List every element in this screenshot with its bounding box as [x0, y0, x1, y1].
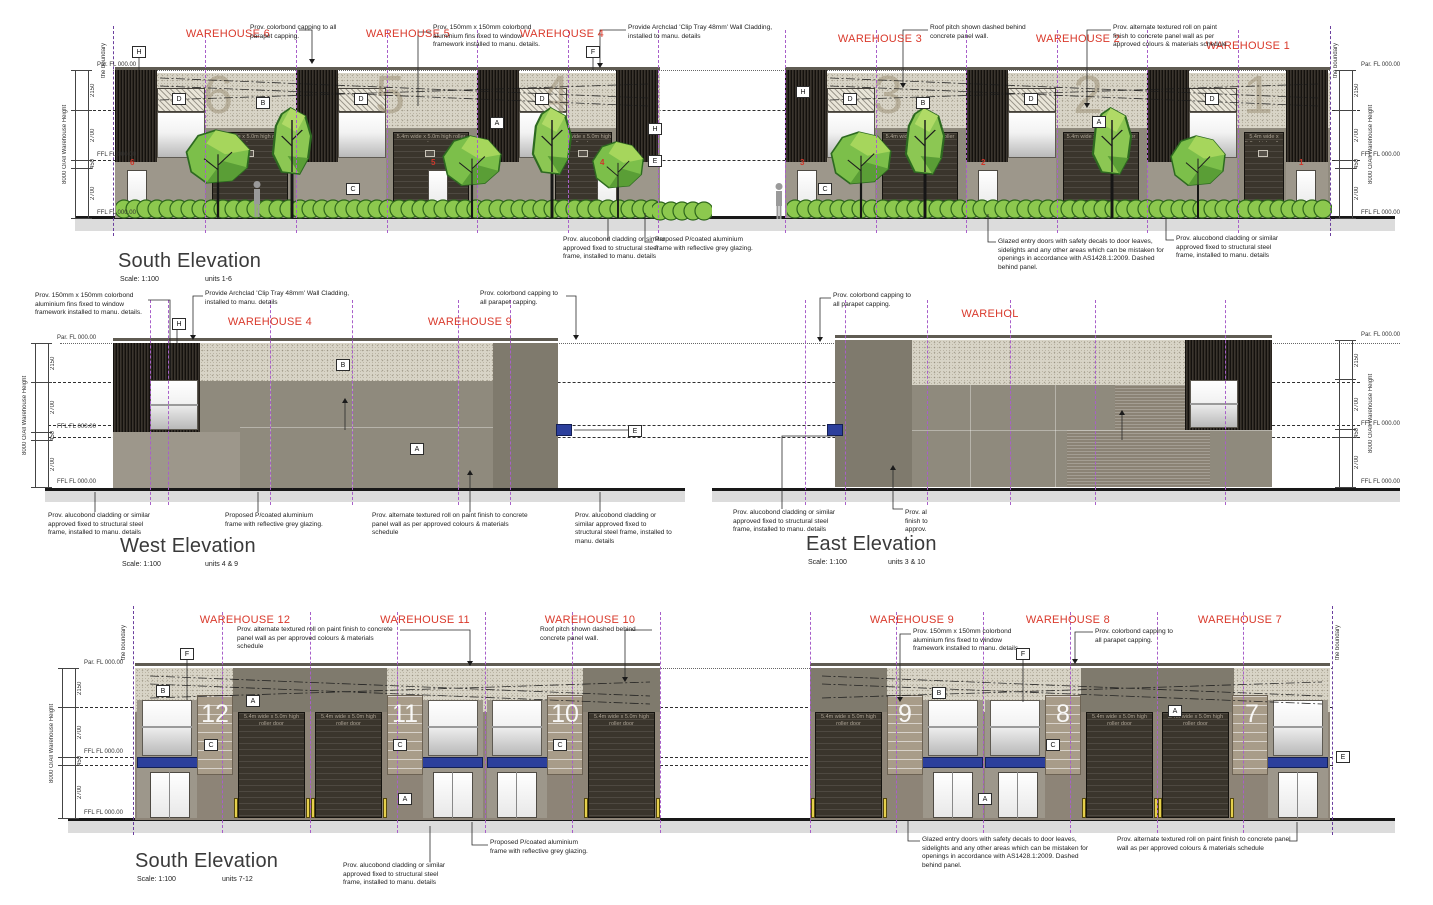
slat-cladding — [115, 70, 157, 162]
person-icon — [772, 182, 786, 220]
tree-icon — [828, 130, 894, 220]
slat-cladding — [1286, 70, 1328, 162]
tree-icon — [590, 140, 646, 220]
grid-line — [485, 612, 486, 833]
spec-note: Provide Archclad 'Clip Tray 48mm' Wall C… — [205, 290, 357, 307]
wall-panel — [1081, 668, 1158, 712]
dimension-tick — [1335, 110, 1356, 111]
canopy — [827, 424, 843, 436]
dimension-text: 8000 O/All Warehouse Height — [49, 674, 59, 812]
unit-number: 6 — [130, 158, 134, 167]
entry-door — [497, 772, 537, 818]
dimension-tick — [31, 432, 52, 433]
spec-note: Prov. alternate textured roll on paint f… — [237, 626, 401, 652]
grid-line — [222, 612, 223, 833]
grid-line — [1225, 300, 1226, 505]
reference-tag: A — [978, 793, 992, 805]
unit-number: 1 — [1299, 158, 1303, 167]
dimension-tick — [1335, 487, 1356, 488]
spec-note: Glazed entry doors with safety decals to… — [922, 836, 1096, 871]
spec-note: Prov. alucobond cladding or similar appr… — [48, 512, 155, 538]
dimension-tick — [31, 343, 52, 344]
grid-line — [458, 300, 459, 505]
grid-line — [510, 300, 511, 505]
unit-number: 5 — [431, 158, 435, 167]
grid-line — [1070, 612, 1071, 833]
warehouse-label: WAREHOUSE 7 — [1198, 614, 1282, 626]
window-sash — [492, 726, 542, 728]
door-mullion — [952, 772, 953, 818]
roller-door-sign — [1258, 150, 1268, 157]
dimension-tick — [58, 757, 79, 758]
reference-tag: A — [490, 117, 504, 129]
reference-tag: H — [796, 86, 810, 98]
south-elevation-7-12-units: units 7-12 — [222, 876, 253, 883]
dimension-text: 2150 — [1354, 78, 1363, 102]
dimension-text: 2150 — [77, 676, 86, 700]
door-mullion — [169, 772, 170, 818]
ground-band — [45, 491, 685, 502]
warehouse-label: WAREHOUSE 4 — [228, 316, 312, 328]
tree-icon — [183, 128, 253, 220]
roller-door-label: 5.4m wide x 5.0m high roller door — [1244, 134, 1284, 142]
dimension-text: 2700 — [90, 181, 99, 205]
unit-number: 3 — [800, 158, 804, 167]
window — [142, 700, 192, 756]
grid-line — [387, 30, 388, 233]
dimension-line — [1339, 340, 1340, 487]
grid-line — [896, 612, 897, 833]
reference-tag: A — [1168, 705, 1182, 717]
facade-numeral: 9 — [898, 702, 912, 727]
entry-door — [933, 772, 973, 818]
reference-tag: E — [648, 155, 662, 167]
level-label: Par. FL 000.00 — [1361, 332, 1400, 338]
dimension-line — [88, 70, 89, 218]
window — [492, 700, 542, 756]
dimension-tick — [58, 818, 79, 819]
window-sash — [150, 404, 198, 406]
unit-number: 2 — [981, 158, 985, 167]
dimension-tick — [71, 160, 92, 161]
arrow-down-icon — [573, 335, 579, 340]
dimension-tick — [1335, 160, 1356, 161]
dimension-tick — [71, 168, 92, 169]
west-elevation-title: West Elevation — [120, 535, 256, 558]
level-label: FFL FL 000.00 — [1361, 210, 1400, 216]
warehouse-label: WAREHOUSE 9 — [428, 316, 512, 328]
entry-door — [1278, 772, 1318, 818]
warehouse-label: WAREHOUSE 10 — [545, 614, 636, 626]
spec-note: Prov. 150mm x 150mm colorbond aluminium … — [433, 24, 548, 50]
dimension-text: 2700 — [1354, 450, 1363, 474]
warehouse-label: WAREHOUSE 12 — [200, 614, 291, 626]
level-label: FFL FL 000.00 — [97, 210, 136, 216]
entry-door — [150, 772, 190, 818]
level-label: Par. FL 000.00 — [97, 62, 136, 68]
dimension-line — [1352, 70, 1353, 218]
door-mullion — [516, 772, 517, 818]
dimension-tick — [1335, 379, 1356, 380]
reference-tag: C — [346, 183, 360, 195]
boundary-line — [113, 26, 114, 236]
dimension-text: 8000 O/All Warehouse Height — [22, 349, 32, 481]
grid-line — [805, 300, 806, 505]
south-elevation-1-6-title: South Elevation — [118, 250, 261, 273]
bollard — [383, 798, 387, 818]
facade-numeral: 12 — [201, 702, 229, 727]
spec-note: Prov. al finish to approv. — [905, 509, 953, 535]
bollard — [234, 798, 238, 818]
window-sash — [1273, 726, 1323, 728]
south-elevation-1-6-scale: Scale: 1:100 — [120, 276, 159, 283]
wall-panel — [233, 668, 310, 712]
dimension-line — [62, 668, 63, 818]
reference-tag: D — [172, 93, 186, 105]
facade-numeral: 6 — [203, 68, 233, 122]
window — [990, 700, 1040, 756]
dimension-text: 8000 O/All Warehouse Height — [62, 76, 72, 212]
reference-tag: H — [648, 123, 662, 135]
reference-tag: B — [916, 97, 930, 109]
dimension-text: 8000 O/All Warehouse Height — [1368, 346, 1378, 481]
grid-line — [270, 300, 271, 505]
roller-door-sign — [425, 150, 435, 157]
reference-tag: D — [843, 93, 857, 105]
level-label: FFL FL 000.00 — [57, 424, 96, 430]
east-elevation-scale: Scale: 1:100 — [808, 559, 847, 566]
reference-tag: B — [156, 685, 170, 697]
spec-note: Prov. colorbond capping to all parapet c… — [480, 290, 565, 307]
grid-line — [1243, 612, 1244, 833]
spec-note: Prov. alternate textured roll on paint f… — [1113, 24, 1228, 50]
dimension-tick — [1335, 340, 1356, 341]
boundary-line — [133, 606, 134, 835]
dimension-text: 2700 — [50, 452, 59, 476]
level-label: FFL FL 000.00 — [97, 152, 136, 158]
spec-note: Prov. alternate textured roll on paint f… — [372, 512, 534, 538]
door-mullion — [452, 772, 453, 818]
reference-tag: D — [1205, 93, 1219, 105]
south-elevation-1-6-units: units 1-6 — [205, 276, 232, 283]
door-mullion — [1017, 772, 1018, 818]
dimension-text: 2700 — [1354, 181, 1363, 205]
reference-tag: F — [180, 648, 194, 660]
wall-panel — [113, 432, 240, 488]
spec-note: Glazed entry doors with safety decals to… — [998, 238, 1168, 273]
roller-door-sign — [578, 150, 588, 157]
window-sash — [990, 726, 1040, 728]
facade-numeral: 11 — [392, 702, 418, 727]
dimension-tick — [1335, 218, 1356, 219]
reference-tag: D — [354, 93, 368, 105]
reference-tag: C — [1046, 739, 1060, 751]
spec-note: Prov. 150mm x 150mm colorbond aluminium … — [913, 628, 1025, 654]
spec-note: Prov. colorbond capping to all parapet c… — [833, 292, 918, 309]
reference-tag: H — [132, 46, 146, 58]
grid-line — [150, 300, 151, 505]
panel-joint — [240, 427, 493, 428]
roller-door-label: 5.4m wide x 5.0m high roller door — [815, 714, 882, 728]
grid-line — [477, 30, 478, 233]
spec-note: Prov. alucobond cladding or similar appr… — [343, 862, 457, 888]
dimension-text: 2150 — [50, 351, 59, 375]
tree-icon — [270, 106, 314, 220]
level-label: FFL FL 000.00 — [1361, 421, 1400, 427]
dimension-tick — [1335, 70, 1356, 71]
masonry-panel — [1115, 385, 1185, 430]
bollard — [883, 798, 887, 818]
window — [428, 700, 478, 756]
dimension-tick — [31, 440, 52, 441]
entry-door — [998, 772, 1038, 818]
spec-note: Provide Archclad 'Clip Tray 48mm' Wall C… — [628, 24, 780, 41]
grid-line — [205, 30, 206, 233]
bollard — [1230, 798, 1234, 818]
dimension-tick — [58, 668, 79, 669]
level-label: FFL FL 000.00 — [84, 749, 123, 755]
slat-cladding — [966, 70, 1008, 162]
dimension-text: 2700 — [50, 395, 59, 419]
grid-line — [785, 30, 786, 233]
wall-panel — [310, 668, 387, 712]
dimension-text: 2700 — [1354, 123, 1363, 147]
facade-numeral: 5 — [375, 68, 405, 122]
wall-panel — [835, 340, 912, 487]
spec-note: Proposed P/coated aluminium frame with r… — [225, 512, 325, 529]
parapet-capping — [835, 335, 1272, 338]
window-sash — [428, 726, 478, 728]
grid-line — [660, 612, 661, 833]
panel-joint — [912, 430, 1272, 431]
facade-numeral: 10 — [551, 702, 579, 727]
window — [1008, 112, 1056, 158]
grid-line — [1095, 300, 1096, 505]
east-elevation-units: units 3 & 10 — [888, 559, 925, 566]
reference-tag: C — [393, 739, 407, 751]
dimension-tick — [58, 707, 79, 708]
wall-panel — [810, 668, 887, 712]
reference-tag: C — [818, 183, 832, 195]
grid-line — [1147, 30, 1148, 233]
reference-tag: B — [256, 97, 270, 109]
roller-door-label: 5.4m wide x 5.0m high roller door — [588, 714, 655, 728]
tree-icon — [1168, 134, 1228, 220]
spec-note: Prov. alternate textured roll on paint f… — [1117, 836, 1291, 853]
dimension-line — [1339, 70, 1340, 218]
bollard — [584, 798, 588, 818]
dimension-text: 8000 O/All Warehouse Height — [1368, 76, 1378, 212]
dimension-text: 2700 — [77, 720, 86, 744]
dimension-tick — [1335, 437, 1356, 438]
slat-cladding — [785, 70, 827, 162]
south-elevation-7-12-scale: Scale: 1:100 — [137, 876, 176, 883]
level-label: Par. FL 000.00 — [1361, 62, 1400, 68]
grid-line — [168, 300, 169, 505]
roller-door-label: 5.4m wide x 5.0m high roller door — [1086, 714, 1153, 728]
shrub-row-icon — [652, 196, 712, 224]
reference-tag: E — [1336, 751, 1350, 763]
facade-numeral: 8 — [1056, 702, 1070, 727]
ground-band — [68, 821, 1395, 833]
grid-line — [927, 300, 928, 505]
dimension-tick — [1335, 429, 1356, 430]
window — [928, 700, 978, 756]
dimension-tick — [31, 487, 52, 488]
dimension-tick — [31, 382, 52, 383]
level-label: Par. FL 000.00 — [84, 660, 123, 666]
dimension-tick — [71, 70, 92, 71]
arrow-down-icon — [309, 59, 315, 64]
reference-tag: B — [336, 359, 350, 371]
arrow-down-icon — [817, 337, 823, 342]
boundary-line — [1330, 26, 1331, 236]
west-elevation-scale: Scale: 1:100 — [122, 561, 161, 568]
grid-line — [845, 300, 846, 505]
roller-door-label: 5.4m wide x 5.0m high roller door — [315, 714, 382, 728]
grid-line — [1057, 30, 1058, 233]
tree-icon — [440, 134, 504, 220]
spec-note: Prov. alucobond cladding or similar appr… — [575, 512, 675, 547]
dimension-line — [1352, 340, 1353, 487]
level-label: Par. FL 000.00 — [57, 335, 96, 341]
grid-line — [966, 30, 967, 233]
bollard — [311, 798, 315, 818]
reference-tag: A — [410, 443, 424, 455]
masonry-panel — [1067, 430, 1210, 487]
reference-tag: D — [535, 93, 549, 105]
spec-note: Prov. colorbond capping to all parapet c… — [1095, 628, 1177, 645]
dimension-line — [48, 343, 49, 487]
grid-line — [876, 30, 877, 233]
south-elevation-7-12-title: South Elevation — [135, 850, 278, 873]
bollard — [1158, 798, 1162, 818]
spec-note: Proposed P/coated aluminium frame with r… — [655, 236, 755, 253]
dimension-text: 2150 — [90, 78, 99, 102]
dimension-tick — [58, 765, 79, 766]
elevation-sheet: South Elevation Scale: 1:100 units 1-6 W… — [0, 0, 1433, 905]
spec-note: Roof pitch shown dashed behind concrete … — [540, 626, 655, 643]
window-sash — [1190, 403, 1238, 405]
reference-tag: B — [932, 687, 946, 699]
warehouse-label: WAREHOUSE 3 — [838, 33, 922, 45]
panel-joint — [1055, 385, 1056, 487]
facade-numeral: 7 — [1245, 702, 1259, 727]
level-label: FFL FL 000.00 — [84, 810, 123, 816]
grid-line — [568, 30, 569, 233]
spec-note: Prov. alucobond cladding or similar appr… — [733, 509, 840, 535]
dimension-tick — [71, 218, 92, 219]
reference-tag: F — [1016, 648, 1030, 660]
grid-line — [352, 300, 353, 505]
window — [1273, 700, 1323, 756]
parapet-capping — [113, 338, 558, 341]
dimension-line — [75, 70, 76, 218]
unit-number: 4 — [600, 158, 604, 167]
warehouse-label: WAREHOL — [961, 308, 1018, 320]
east-elevation-title: East Elevation — [806, 533, 937, 556]
dimension-tick — [1335, 168, 1356, 169]
dimension-line — [35, 343, 36, 487]
dimension-text: 2150 — [1354, 348, 1363, 372]
bollard — [1082, 798, 1086, 818]
warehouse-label: WAREHOUSE 8 — [1026, 614, 1110, 626]
level-label: FFL FL 000.00 — [1361, 479, 1400, 485]
grid-line — [296, 30, 297, 233]
reference-tag: A — [246, 695, 260, 707]
canopy — [556, 424, 572, 436]
level-label: FFL FL 000.00 — [1361, 152, 1400, 158]
warehouse-label: WAREHOUSE 11 — [380, 614, 470, 626]
reference-tag: A — [398, 793, 412, 805]
window-sash — [928, 726, 978, 728]
boundary-label: the boundary — [1335, 612, 1345, 672]
reference-tag: D — [1024, 93, 1038, 105]
reference-tag: A — [1092, 116, 1106, 128]
reference-tag: C — [204, 739, 218, 751]
ground-band — [712, 491, 1400, 502]
level-label: FFL FL 000.00 — [57, 479, 96, 485]
dimension-text: 2700 — [77, 780, 86, 804]
boundary-label: the boundary — [101, 30, 111, 90]
wall-panel — [493, 343, 558, 488]
door-mullion — [1297, 772, 1298, 818]
reference-tag: F — [586, 46, 600, 58]
grid-line — [572, 612, 573, 833]
dimension-tick — [71, 110, 92, 111]
person-icon — [250, 180, 264, 218]
reference-tag: C — [553, 739, 567, 751]
facade-numeral: 3 — [873, 68, 903, 122]
facade-numeral: 1 — [1243, 68, 1273, 122]
entry-door — [433, 772, 473, 818]
bollard — [811, 798, 815, 818]
roller-door-label: 5.4m wide x 5.0m high roller door — [238, 714, 305, 728]
spec-note: Prov. 150mm x 150mm colorbond aluminium … — [35, 292, 150, 318]
tree-icon — [903, 106, 947, 220]
warehouse-label: WAREHOUSE 9 — [870, 614, 954, 626]
grid-line — [1010, 300, 1011, 505]
panel-joint — [970, 385, 971, 487]
spec-note: Roof pitch shown dashed behind concrete … — [930, 24, 1045, 41]
reference-tag: E — [628, 425, 642, 437]
boundary-line — [1332, 606, 1333, 835]
warehouse-label: WAREHOUSE 2 — [1036, 33, 1120, 45]
dimension-text: 2700 — [1354, 392, 1363, 416]
reference-tag: H — [172, 318, 186, 330]
grid-line — [810, 612, 811, 833]
boundary-label: the boundary — [1333, 30, 1343, 90]
dimension-text: 2700 — [90, 123, 99, 147]
spec-note: Proposed P/coated aluminium frame with r… — [490, 839, 590, 856]
west-elevation-units: units 4 & 9 — [205, 561, 238, 568]
spec-note: Prov. colorbond capping to all parapet c… — [250, 24, 340, 41]
window-sash — [142, 726, 192, 728]
dimension-line — [75, 668, 76, 818]
grid-line — [1238, 30, 1239, 233]
spec-note: Prov. alucobond cladding or similar appr… — [1176, 235, 1286, 261]
wall-panel — [583, 668, 660, 712]
